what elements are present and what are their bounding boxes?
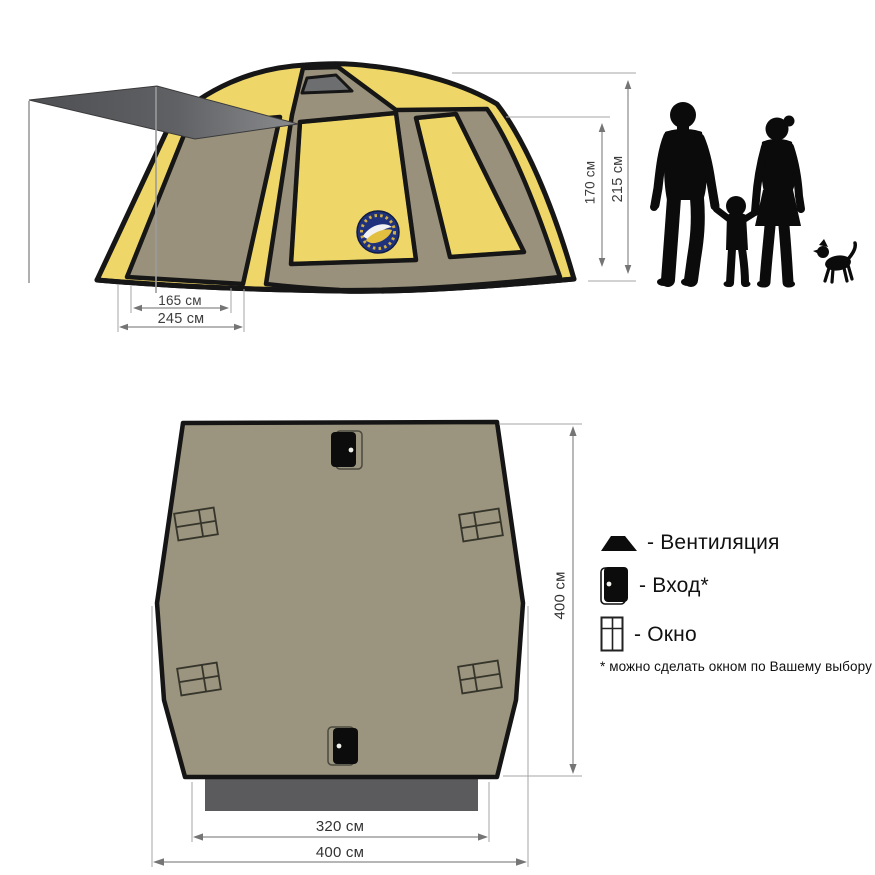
person-woman (755, 116, 801, 288)
dim-wall-height-line (599, 123, 606, 267)
legend-item-entrance: - Вход* (600, 566, 875, 605)
brand-logo (357, 211, 399, 253)
dog-silhouette (813, 239, 855, 282)
legend-label-entrance: - Вход* (639, 574, 709, 598)
dim-depth-line (569, 426, 576, 774)
legend: - Вентиляция - Вход* - Окно (600, 531, 875, 664)
vent-icon (600, 535, 638, 552)
legend-label-ventilation: - Вентиляция (647, 531, 780, 555)
door-icon (600, 566, 630, 605)
dim-total-width-label: 400 см (290, 844, 390, 861)
skirt (755, 190, 801, 226)
legend-label-window: - Окно (634, 623, 697, 647)
dim-total-height-label: 215 см (610, 149, 626, 209)
family-silhouette (650, 102, 855, 288)
legend-footnote: * можно сделать окном по Вашему выбору (600, 659, 872, 674)
person-child (716, 196, 756, 287)
porch-mat (205, 779, 478, 811)
floor-plan-outline (157, 422, 523, 777)
legend-item-window: - Окно (600, 616, 875, 653)
dim-wall-height-label: 170 см (583, 153, 598, 213)
dim-depth-label: 400 см (552, 560, 569, 632)
dim-front-width-label: 320 см (290, 818, 390, 835)
legend-item-ventilation: - Вентиляция (600, 531, 875, 555)
tent-spec-diagram: 165 см 245 см 170 см 215 см 400 см 320 с… (0, 0, 875, 875)
dim-inner-width-label: 165 см (131, 293, 229, 308)
floor-plan (157, 422, 523, 811)
person-man (650, 102, 715, 286)
tent-side-view (29, 64, 574, 293)
diagram-canvas (0, 0, 875, 875)
window-icon (600, 616, 625, 653)
dim-awning-width-label: 245 см (119, 311, 243, 327)
